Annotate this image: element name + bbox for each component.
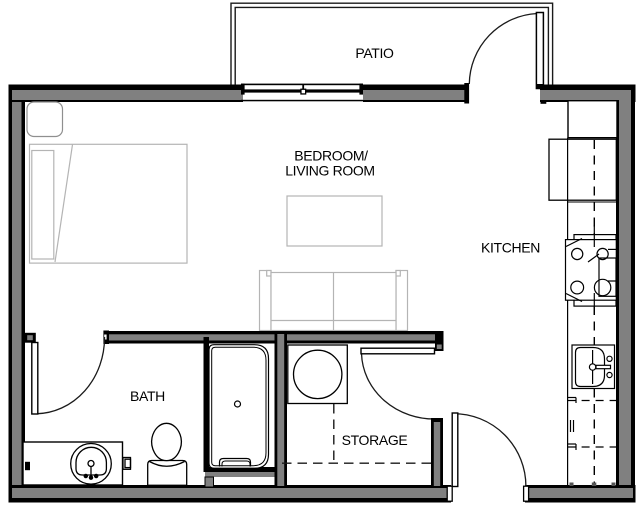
svg-text:BATH: BATH	[130, 388, 165, 404]
svg-text:LIVING ROOM: LIVING ROOM	[285, 163, 375, 179]
svg-text:KITCHEN: KITCHEN	[481, 240, 540, 256]
svg-text:BEDROOM/: BEDROOM/	[294, 148, 368, 164]
svg-text:PATIO: PATIO	[355, 45, 394, 61]
svg-text:STORAGE: STORAGE	[342, 432, 408, 448]
